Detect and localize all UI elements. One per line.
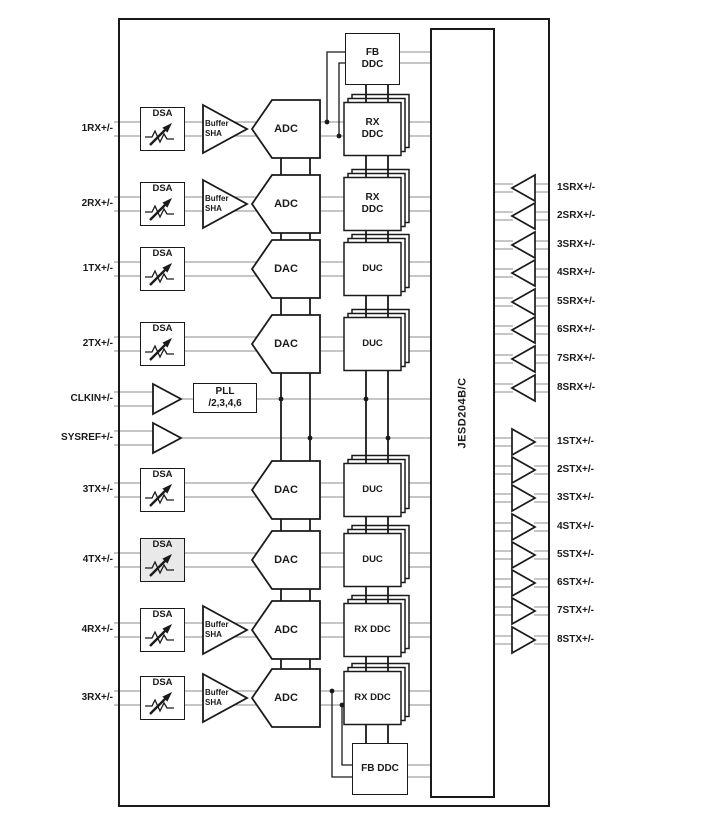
dsa-label: DSA	[141, 678, 184, 688]
buffer-sha-label: BufferSHA	[205, 688, 239, 707]
pin-label-1stx: 1STX+/-	[557, 435, 647, 449]
variable-attenuator-icon	[141, 194, 186, 224]
adc-label: ADC	[254, 690, 318, 706]
variable-attenuator-icon	[141, 119, 186, 149]
pin-label-6stx: 6STX+/-	[557, 576, 647, 590]
rx-ddc-label: RXDDC	[344, 117, 401, 140]
dsa-label: DSA	[141, 184, 184, 194]
pin-label-2stx: 2STX+/-	[557, 463, 647, 477]
fb-ddc-bottom-block: FB DDC	[352, 743, 408, 795]
adc-label: ADC	[254, 121, 318, 137]
variable-attenuator-icon	[141, 334, 186, 364]
pin-label-7srx: 7SRX+/-	[557, 352, 647, 366]
jesd204-block: JESD204B/C	[430, 28, 495, 798]
buffer-sha-label: BufferSHA	[205, 620, 239, 639]
dsa-block-1tx: DSA	[140, 247, 185, 291]
pin-label-sysref: SYSREF+/-	[28, 431, 113, 445]
fb-ddc-top-block: FB DDC	[345, 33, 400, 85]
dsa-block-4tx: DSA	[140, 538, 185, 582]
pin-label-4tx: 4TX+/-	[28, 553, 113, 567]
dsa-block-3tx: DSA	[140, 468, 185, 512]
duc-label: DUC	[344, 337, 401, 351]
dsa-label: DSA	[141, 610, 184, 620]
pin-label-3tx: 3TX+/-	[28, 483, 113, 497]
pin-label-5stx: 5STX+/-	[557, 548, 647, 562]
transceiver-block-diagram: JESD204B/C PLL /2,3,4,6 FB DDC FB DDC DS…	[0, 0, 704, 828]
dsa-label: DSA	[141, 249, 184, 259]
dsa-label: DSA	[141, 470, 184, 480]
dsa-block-4rx: DSA	[140, 608, 185, 652]
pin-label-3rx: 3RX+/-	[28, 691, 113, 705]
fb-ddc-label: FB	[366, 47, 379, 59]
rx-ddc-label: RX DDC	[344, 691, 401, 705]
variable-attenuator-icon	[141, 688, 186, 718]
pin-label-5srx: 5SRX+/-	[557, 295, 647, 309]
pin-label-2tx: 2TX+/-	[28, 337, 113, 351]
dac-label: DAC	[254, 552, 318, 568]
variable-attenuator-icon	[141, 259, 186, 289]
pin-label-7stx: 7STX+/-	[557, 604, 647, 618]
buffer-sha-label: BufferSHA	[205, 194, 239, 213]
pin-label-6srx: 6SRX+/-	[557, 323, 647, 337]
pll-dividers-label: /2,3,4,6	[194, 398, 256, 410]
pin-label-8stx: 8STX+/-	[557, 633, 647, 647]
duc-label: DUC	[344, 483, 401, 497]
variable-attenuator-icon	[141, 620, 186, 650]
pin-label-3srx: 3SRX+/-	[557, 238, 647, 252]
adc-label: ADC	[254, 622, 318, 638]
variable-attenuator-icon	[141, 550, 186, 580]
pin-label-2rx: 2RX+/-	[28, 197, 113, 211]
dsa-label: DSA	[141, 109, 184, 119]
dsa-label: DSA	[141, 540, 184, 550]
pin-label-4rx: 4RX+/-	[28, 623, 113, 637]
pin-label-1tx: 1TX+/-	[28, 262, 113, 276]
pll-label: PLL	[194, 386, 256, 398]
duc-label: DUC	[344, 553, 401, 567]
jesd204-label: JESD204B/C	[457, 377, 469, 448]
variable-attenuator-icon	[141, 480, 186, 510]
dac-label: DAC	[254, 482, 318, 498]
rx-ddc-label: RXDDC	[344, 192, 401, 215]
duc-label: DUC	[344, 262, 401, 276]
pin-label-8srx: 8SRX+/-	[557, 381, 647, 395]
rx-ddc-label: RX DDC	[344, 623, 401, 637]
pin-label-clkin: CLKIN+/-	[28, 392, 113, 406]
dsa-block-2rx: DSA	[140, 182, 185, 226]
pin-label-3stx: 3STX+/-	[557, 491, 647, 505]
dac-label: DAC	[254, 261, 318, 277]
pin-label-1rx: 1RX+/-	[28, 122, 113, 136]
dsa-block-2tx: DSA	[140, 322, 185, 366]
adc-label: ADC	[254, 196, 318, 212]
dac-label: DAC	[254, 336, 318, 352]
pin-label-4srx: 4SRX+/-	[557, 266, 647, 280]
dsa-block-1rx: DSA	[140, 107, 185, 151]
pin-label-1srx: 1SRX+/-	[557, 181, 647, 195]
pin-label-4stx: 4STX+/-	[557, 520, 647, 534]
dsa-label: DSA	[141, 324, 184, 334]
pll-block: PLL /2,3,4,6	[193, 383, 257, 413]
buffer-sha-label: BufferSHA	[205, 119, 239, 138]
fb-ddc-label: FB DDC	[361, 763, 399, 775]
fb-ddc-label: DDC	[362, 59, 384, 71]
dsa-block-3rx: DSA	[140, 676, 185, 720]
pin-label-2srx: 2SRX+/-	[557, 209, 647, 223]
